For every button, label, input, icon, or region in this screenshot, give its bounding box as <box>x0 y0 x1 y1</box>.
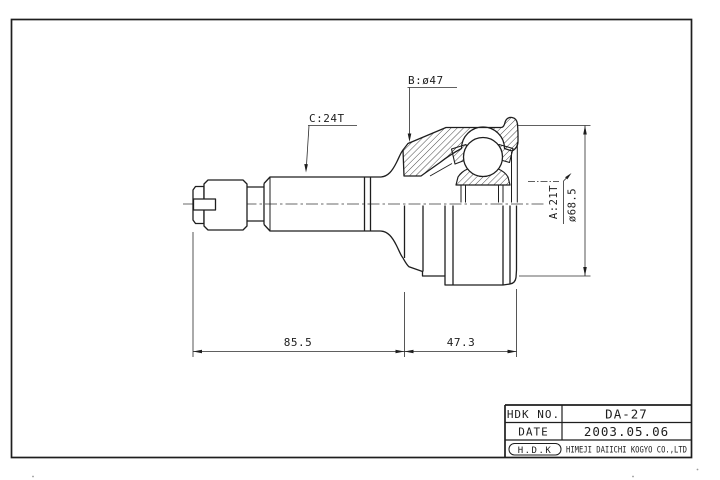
title-block-row2-label: DATE <box>518 426 549 439</box>
label-dia-b: B:ø47 <box>408 74 444 87</box>
bell-external-bottom <box>403 206 517 286</box>
label-spline-c: C:24T <box>309 112 345 125</box>
dim-47-3: 47.3 <box>447 336 476 349</box>
cv-ball <box>464 138 503 177</box>
sheet-border <box>12 20 692 458</box>
drawing-sheet: C:24T B:ø47 A:21T ø68.5 85.5 47.3 HDK NO… <box>0 0 720 480</box>
label-dia-outer: ø68.5 <box>567 188 579 222</box>
flare-top <box>380 150 403 177</box>
dimension-lines <box>193 88 591 358</box>
title-block-row1-value: DA-27 <box>605 407 648 422</box>
title-block: HDK NO. DA-27 DATE 2003.05.06 H.D.K HIME… <box>505 405 692 458</box>
engineering-drawing: C:24T B:ø47 A:21T ø68.5 85.5 47.3 HDK NO… <box>0 0 720 480</box>
flare-bottom <box>380 231 403 258</box>
title-block-row1-label: HDK NO. <box>507 408 560 421</box>
snap-ring-tab <box>194 199 216 210</box>
print-dots <box>32 469 698 478</box>
company-name: HIMEJI DAIICHI KOGYO CO.,LTD <box>566 446 687 456</box>
dimension-arrowheads <box>193 126 587 354</box>
dim-85-5: 85.5 <box>284 336 313 349</box>
title-block-row2-value: 2003.05.06 <box>584 424 669 439</box>
label-spline-a: A:21T <box>548 185 560 219</box>
company-logo: H.D.K <box>518 446 553 456</box>
